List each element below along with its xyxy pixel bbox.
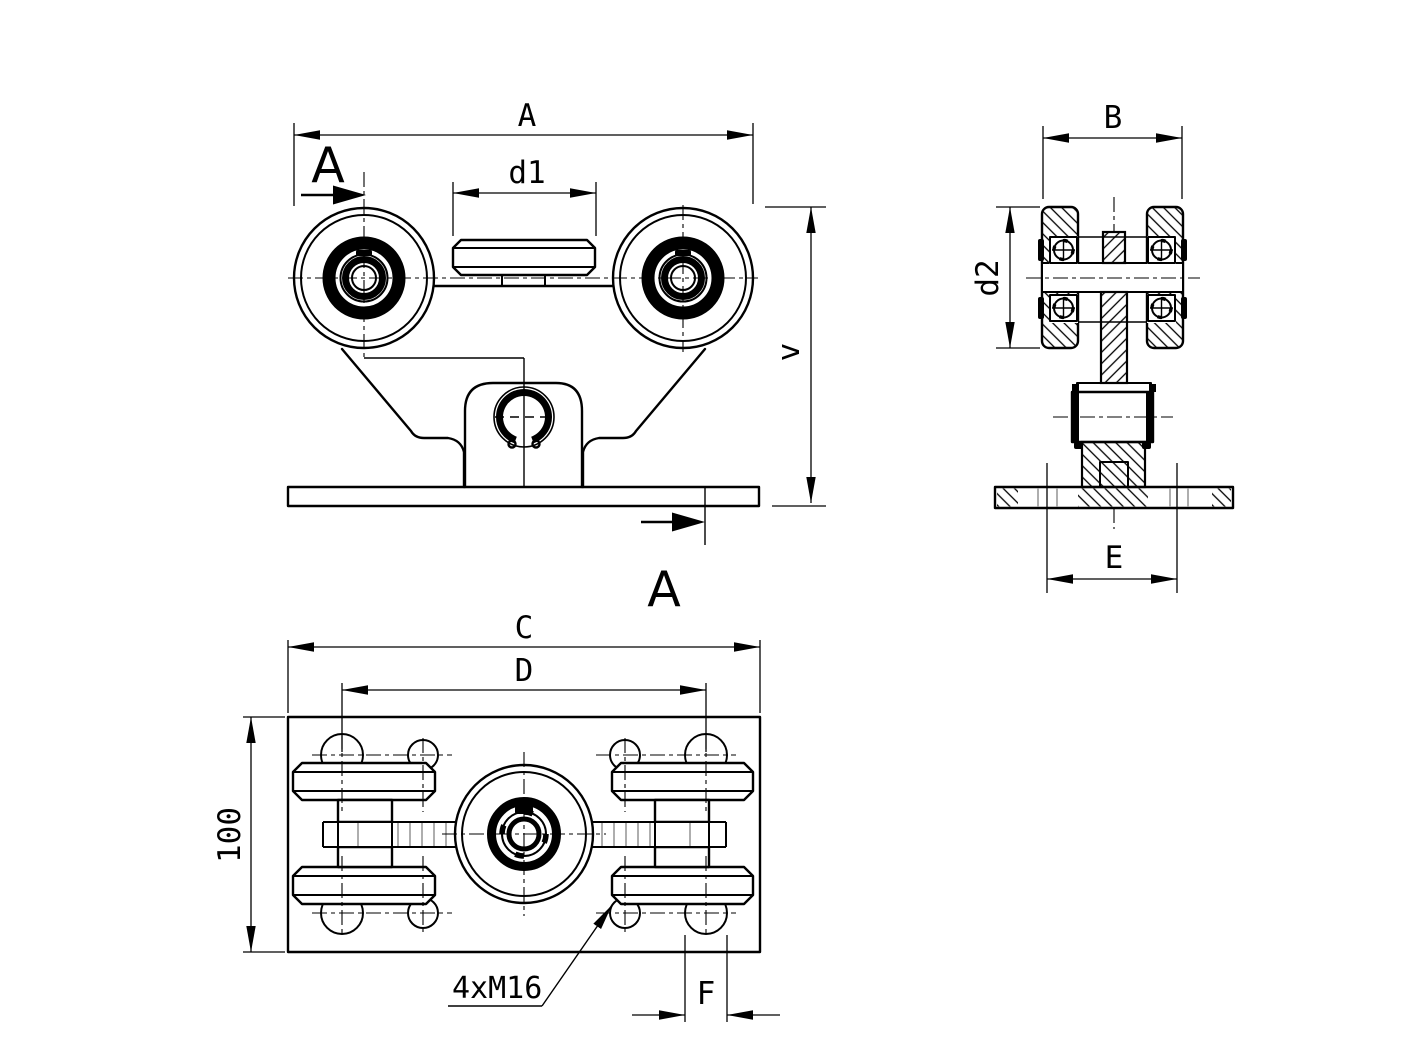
dim-label-C: C — [515, 610, 534, 646]
section-letter-top: A — [311, 137, 345, 194]
section-letter-bottom: A — [647, 561, 681, 618]
drawing-sheet: A d1 v A A — [0, 0, 1416, 1062]
dim-label-A: A — [518, 98, 537, 134]
pedestal — [1082, 442, 1145, 487]
bearing-seal-mark — [356, 250, 372, 256]
dim-label-D: D — [515, 653, 534, 689]
dim-label-B: B — [1104, 100, 1123, 136]
shaft-section — [1101, 292, 1127, 383]
bearing-seal-mark — [675, 250, 691, 256]
dim-label-v: v — [771, 343, 807, 362]
dim-label-d1: d1 — [508, 155, 545, 191]
dim-label-F: F — [697, 976, 716, 1012]
technical-drawing: A d1 v A A — [0, 0, 1416, 1062]
thread-note-label: 4xM16 — [452, 971, 542, 1006]
dim-label-E: E — [1105, 540, 1124, 576]
dim-label-100: 100 — [212, 807, 248, 863]
top-tab-section — [1103, 232, 1125, 263]
dim-label-d2: d2 — [970, 259, 1006, 296]
